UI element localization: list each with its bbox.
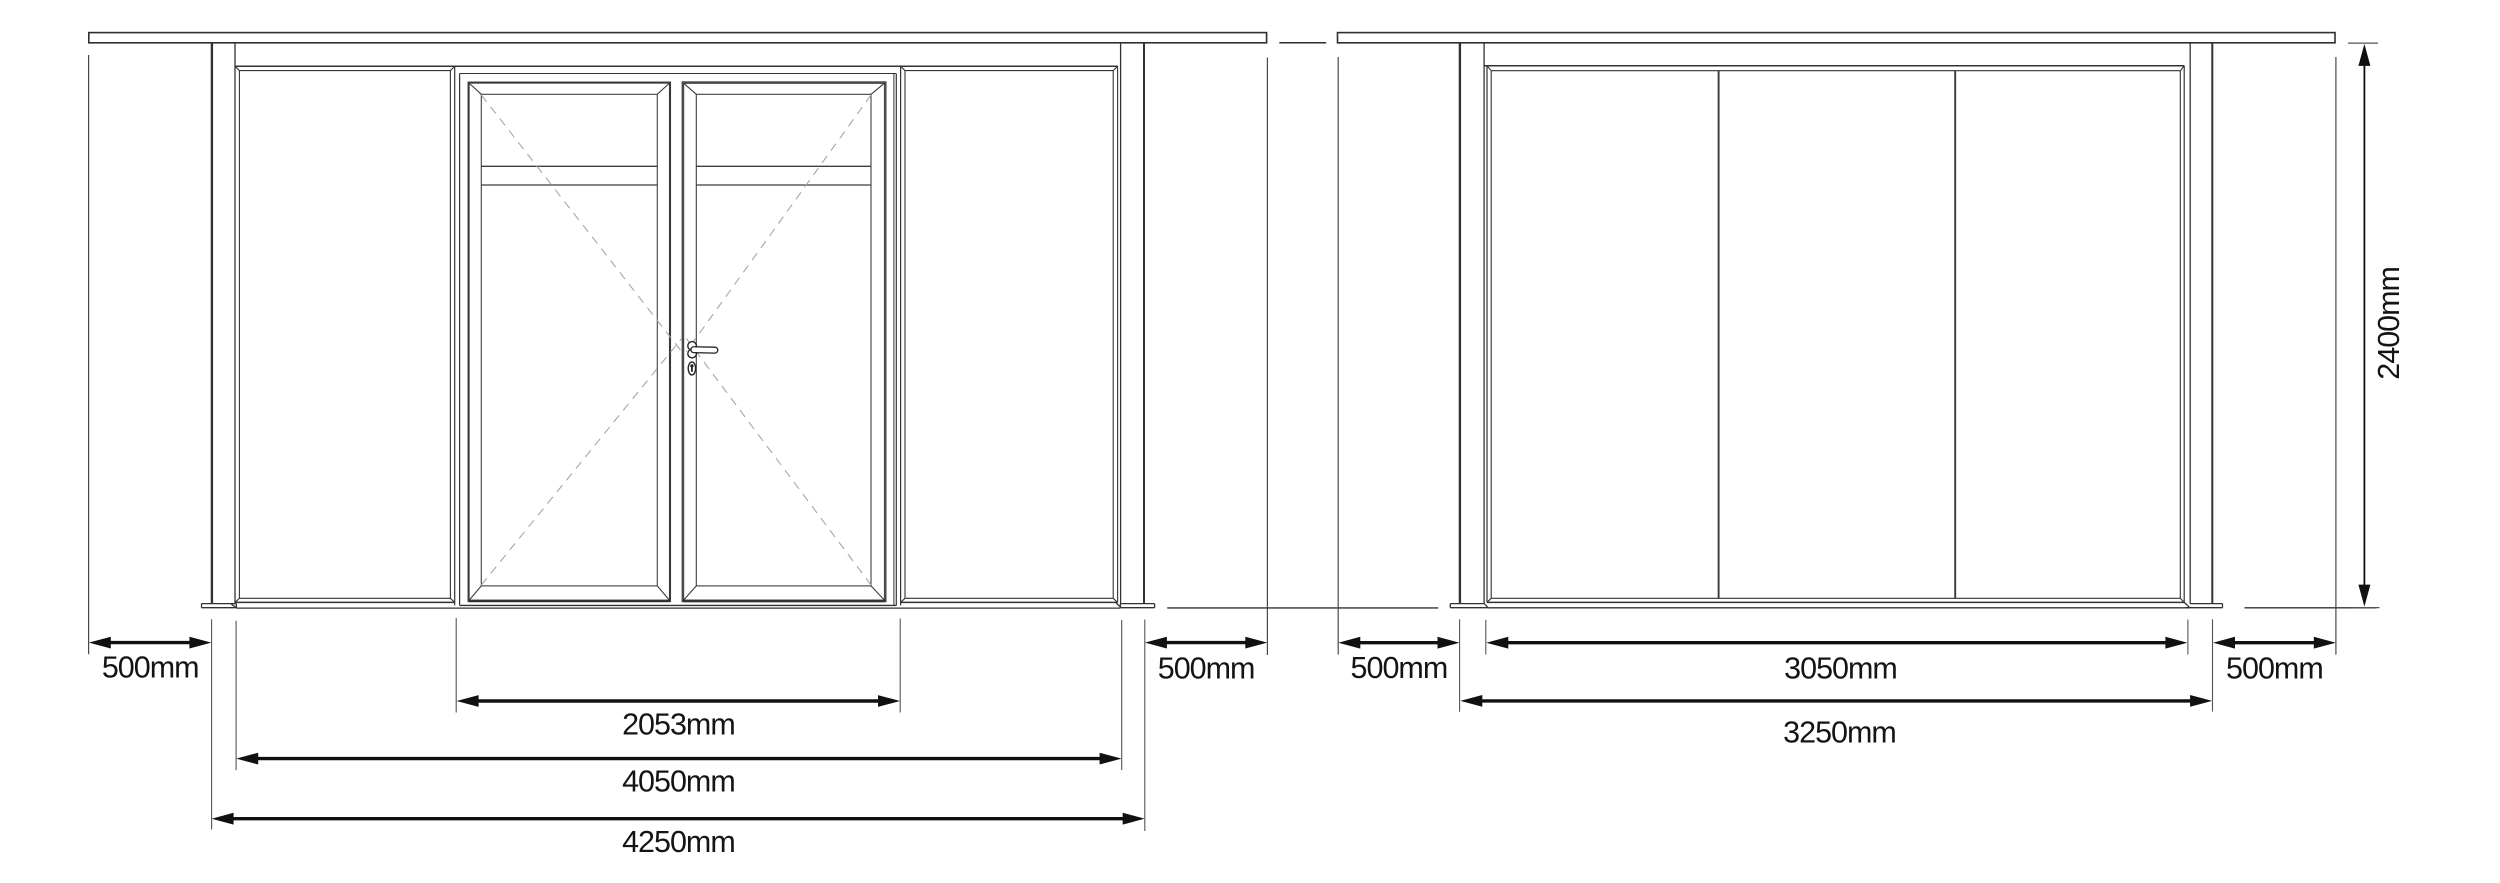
svg-text:500mm: 500mm xyxy=(1351,651,1448,685)
svg-text:500mm: 500mm xyxy=(2226,651,2323,685)
svg-text:2400mm: 2400mm xyxy=(2372,267,2406,380)
svg-text:500mm: 500mm xyxy=(1158,651,1255,685)
svg-text:4050mm: 4050mm xyxy=(622,764,735,798)
svg-text:2053mm: 2053mm xyxy=(622,708,735,742)
svg-text:4250mm: 4250mm xyxy=(622,825,735,859)
svg-text:3050mm: 3050mm xyxy=(1784,652,1897,686)
svg-text:500mm: 500mm xyxy=(102,650,199,684)
svg-text:3250mm: 3250mm xyxy=(1783,716,1896,750)
